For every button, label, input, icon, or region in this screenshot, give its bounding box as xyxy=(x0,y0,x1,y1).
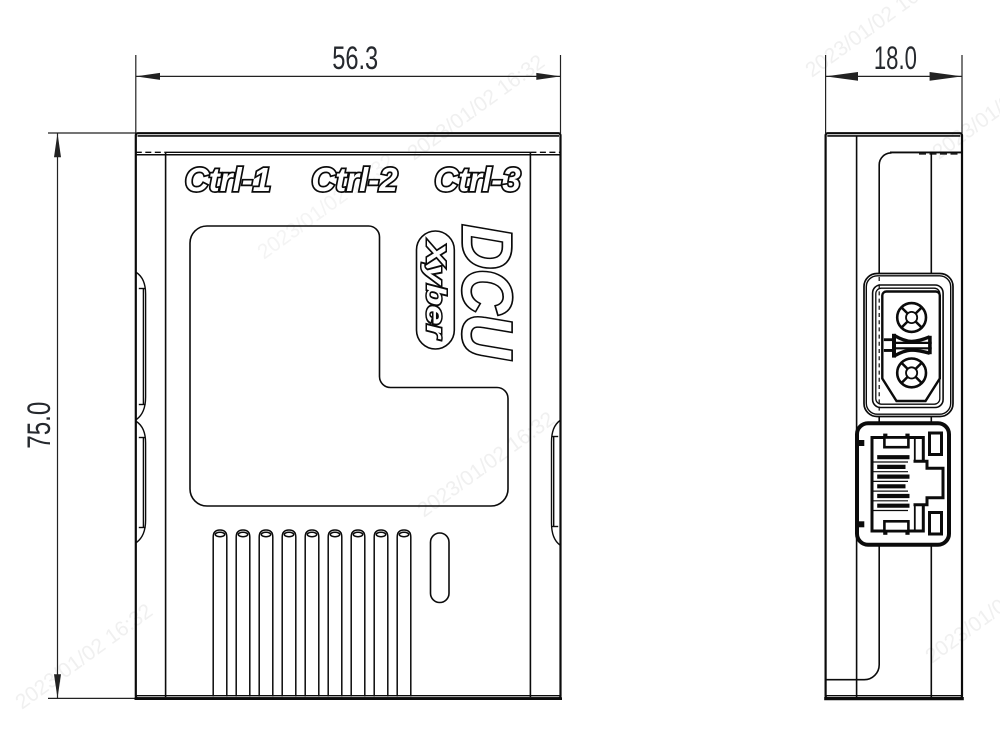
svg-text:DCU: DCU xyxy=(448,225,526,360)
svg-text:Ctrl-2: Ctrl-2 xyxy=(311,161,398,198)
svg-text:75.0: 75.0 xyxy=(21,402,57,449)
svg-text:56.3: 56.3 xyxy=(332,40,378,76)
svg-text:18.0: 18.0 xyxy=(874,40,917,76)
svg-text:Xyber: Xyber xyxy=(421,239,451,339)
svg-text:Ctrl-1: Ctrl-1 xyxy=(185,161,271,198)
svg-text:Ctrl-3: Ctrl-3 xyxy=(434,161,520,198)
